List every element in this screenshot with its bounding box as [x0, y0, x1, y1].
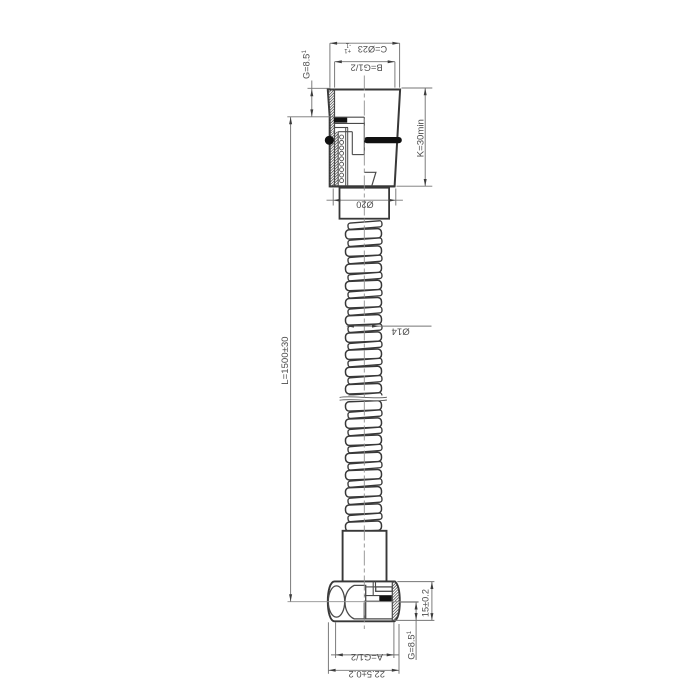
svg-text:Ø20: Ø20 — [356, 200, 373, 210]
svg-text:Ø14: Ø14 — [391, 325, 410, 336]
svg-text:A=G1/2: A=G1/2 — [351, 652, 383, 663]
svg-text:K=30min: K=30min — [416, 119, 427, 157]
svg-text:15±0.2: 15±0.2 — [421, 589, 431, 617]
svg-text:-1: -1 — [345, 41, 351, 47]
svg-text:B=G1/2: B=G1/2 — [351, 62, 383, 73]
svg-text:L=1500±30: L=1500±30 — [280, 336, 291, 384]
svg-text:G=8.5: G=8.5 — [407, 635, 417, 660]
svg-text:G=8.5: G=8.5 — [301, 54, 311, 79]
svg-text:C=Ø23: C=Ø23 — [358, 44, 387, 54]
svg-text:-1: -1 — [407, 630, 413, 636]
svg-text:-1: -1 — [302, 49, 308, 55]
svg-text:22.5±0.2: 22.5±0.2 — [349, 669, 385, 680]
